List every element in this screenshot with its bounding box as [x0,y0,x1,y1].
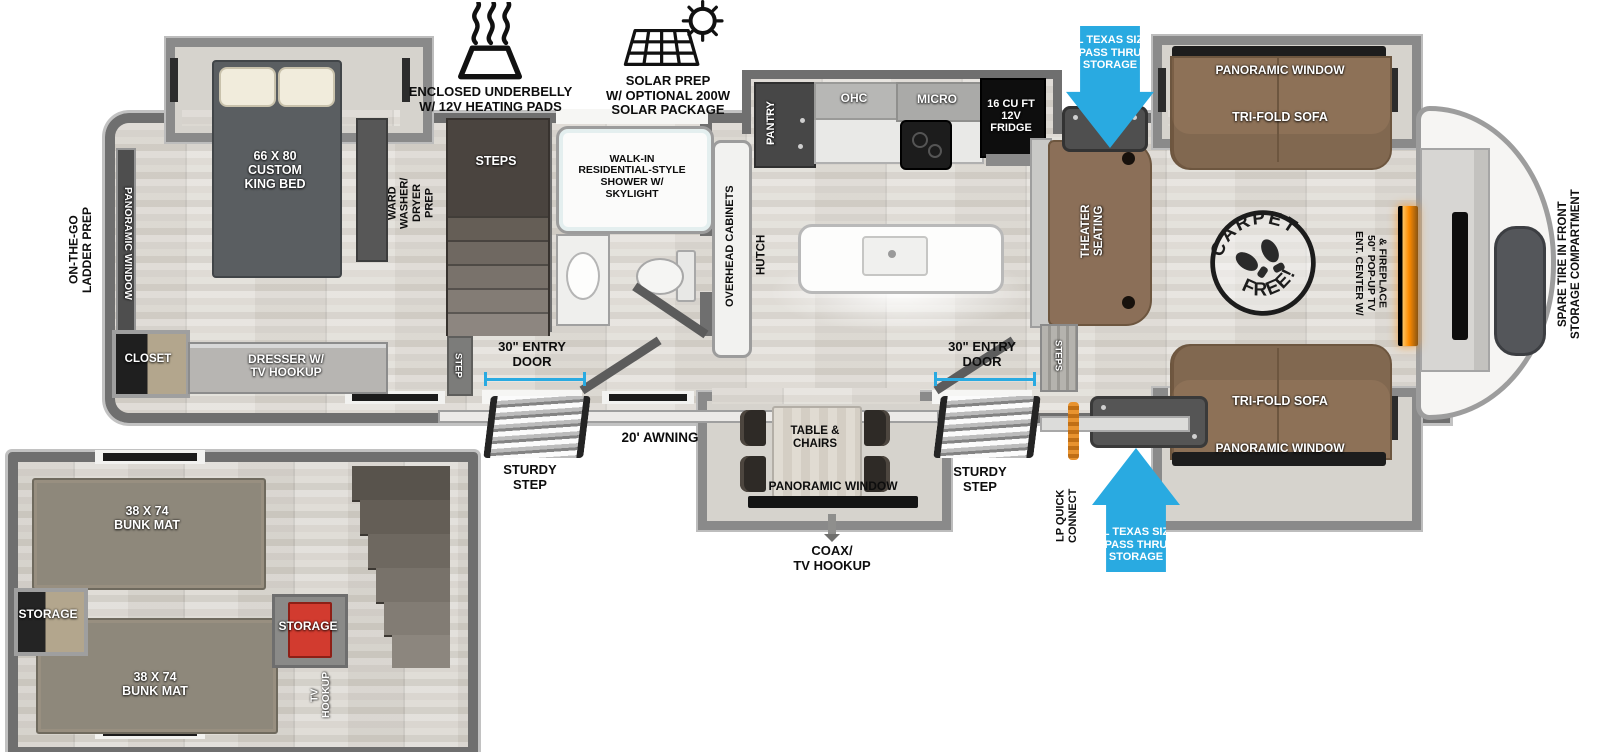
dinette-slide-opening [712,388,920,404]
bunkroom-window-top [103,453,197,461]
solar-prep-icon [612,0,737,74]
entry-step-block [447,336,473,396]
shower-exterior-wall [556,109,708,124]
kitchen-counter [814,116,984,164]
entry-door-rear-measure [484,372,586,386]
bunk-mat-top [32,478,266,590]
sturdy-step-rear [483,396,591,458]
overhead-cabinet-counter [712,140,752,358]
theater-cupholder-bottom [1122,296,1135,309]
sofa-top-slide-window-left [1158,68,1166,112]
dinette-chair-1 [740,410,766,446]
fireplace [1398,206,1418,346]
coax-label: COAX/ TV HOOKUP [772,542,892,576]
island-faucet [888,250,896,258]
coax-connector-tip [824,534,840,542]
spare-tire-compartment [1494,226,1546,356]
panoramic-window-rear-glass [116,148,136,342]
coax-connector-icon [828,514,836,536]
sturdy-step-rear-label: STURDY STEP [478,460,582,496]
pass-thru-tube [1040,416,1190,432]
sofa-bottom-seam [1277,348,1279,452]
dinette-chair-3 [864,410,890,446]
dinette-chair-4 [864,456,890,492]
theater-cupholder-top [1122,152,1135,165]
bath-sink [566,252,600,300]
bed-pillow-right [278,67,335,107]
bed-pillow-left [219,67,276,107]
floorplan-canvas: ENCLOSED UNDERBELLY W/ 12V HEATING PADS … [0,0,1600,752]
dresser [188,342,388,394]
dinette-window-glass [748,496,918,508]
ladder-prep-label: ON-THE-GO LADDER PREP [62,165,100,335]
lp-hose [1068,402,1079,460]
popup-tv [1452,212,1468,340]
sturdy-step-front [933,396,1041,458]
refrigerator-base [986,154,1036,166]
bunkroom-storage-left [14,588,88,656]
microwave-cabinet [896,82,982,122]
bunkroom-stairs [352,466,450,668]
wardrobe-cabinet [356,118,388,262]
window-mid-bottom [609,394,687,401]
cooktop [900,120,952,170]
living-steps-block [1040,324,1078,392]
ohc-cabinet [814,82,898,120]
bedroom-slide-window-left [170,58,178,102]
sofa-top-seam [1277,58,1279,162]
panoramic-window-bottom-glass [1172,452,1386,466]
bunkroom-storage-red-item [288,602,332,658]
bedroom-slide-window-right [402,58,410,102]
window-rear-bottom [352,394,438,401]
closet [112,330,190,398]
trifold-sofa-top [1170,56,1392,170]
dinette-chair-2 [740,456,766,492]
main-staircase [446,118,550,336]
lp-quick-connect-label: LP QUICK CONNECT [1046,464,1088,568]
theater-seating [1048,140,1152,326]
dinette-table [772,406,862,498]
entry-door-front-measure [934,372,1036,386]
pantry-cabinet [754,82,816,168]
heating-pads-icon [440,2,540,82]
walkin-shower [556,126,714,234]
